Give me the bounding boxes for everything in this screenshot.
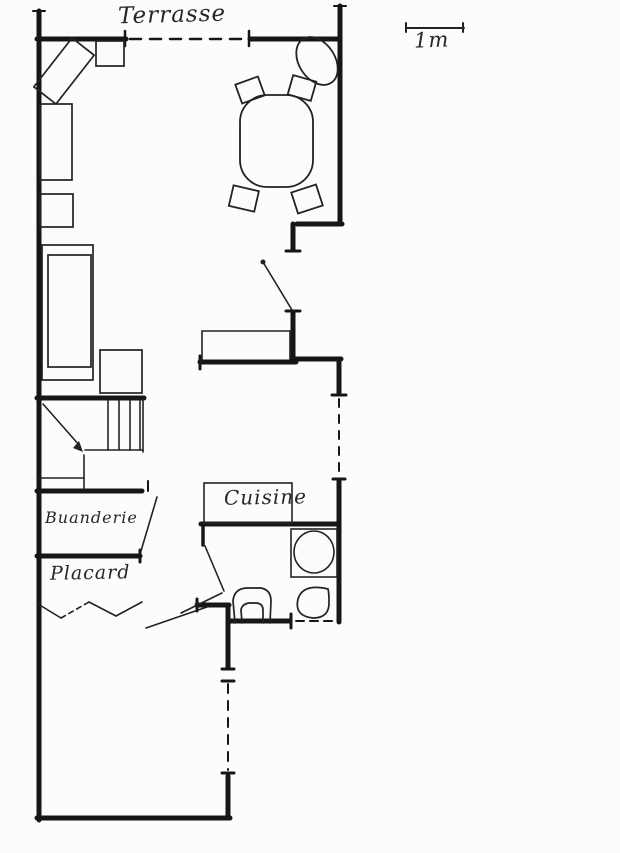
cabinet [100,350,142,393]
bottom-room-walls [37,681,234,818]
living-hall-walls [286,224,342,362]
toilet-outer [233,588,271,623]
placard-zigzag-2 [61,602,89,618]
outer-walls [33,6,346,820]
side-table-top [96,41,124,66]
dining-chair-bottom-left [229,185,259,211]
desk-inner [48,255,91,367]
living-furniture [34,38,142,393]
dining-table [240,95,313,187]
living-door-leaf [263,262,292,310]
counters [202,331,337,577]
floor-plan-page: Terrasse 1m Cuisine Buanderie Placard [0,0,620,853]
left-rooms-walls [37,398,148,562]
dining-chair-top-left [235,76,264,103]
armchair [34,38,94,104]
kitchen-door-leaf [205,546,224,591]
sofa [40,104,72,180]
hall-counter [202,331,290,361]
bathroom-fixtures [233,587,329,623]
dining-chair-top-right [288,75,317,101]
stair-arrow-line [43,404,80,446]
buanderie-door-leaf [141,497,157,551]
desk-outer [42,245,93,380]
kitchen-sink-unit [291,529,337,577]
door-swings [141,260,292,629]
room-label-placard: Placard [50,563,131,583]
scale-label: 1m [414,29,450,51]
room-label-buanderie: Buanderie [45,510,138,526]
placard-zigzag-3 [89,602,116,616]
room-label-terrasse: Terrasse [118,3,227,29]
dining-chair-bottom-right [291,185,323,214]
dining-set [229,29,346,213]
placard-zigzag-4 [116,602,142,616]
placard-door-leaf [146,607,207,628]
placard-front [38,602,142,618]
side-table-mid [40,194,73,227]
room-label-cuisine: Cuisine [224,486,307,507]
wc-walls [197,599,334,669]
floor-plan-drawing [0,0,620,853]
washbasin [297,587,329,618]
stairs [38,399,143,488]
kitchen-sink-bowl [294,531,334,573]
stair-arrow-head [73,441,83,452]
